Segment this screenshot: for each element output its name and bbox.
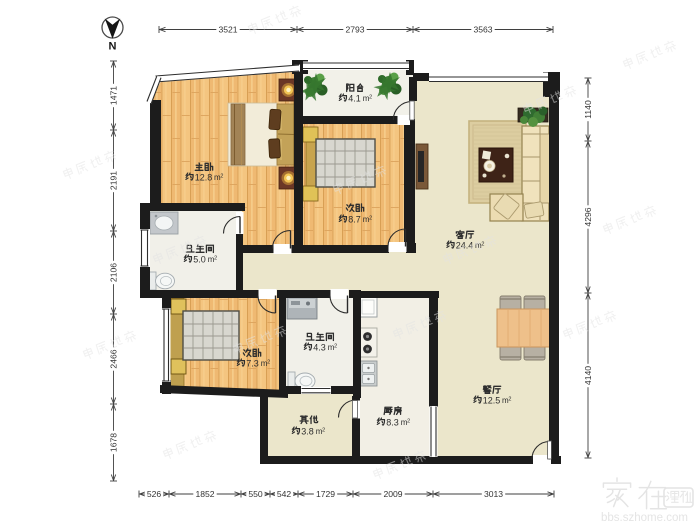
svg-text:2466: 2466 — [109, 349, 119, 368]
svg-text:2793: 2793 — [345, 25, 364, 35]
svg-text:2: 2 — [322, 428, 325, 434]
svg-text:4296: 4296 — [583, 207, 593, 226]
svg-text:3.8: 3.8 — [301, 426, 314, 436]
svg-text:2191: 2191 — [109, 171, 119, 190]
svg-text:4140: 4140 — [583, 366, 593, 385]
svg-text:8.3: 8.3 — [386, 417, 399, 427]
svg-text:2: 2 — [214, 256, 217, 262]
svg-text:2: 2 — [481, 242, 484, 248]
svg-text:12.5: 12.5 — [483, 395, 501, 405]
svg-text:1678: 1678 — [109, 433, 119, 452]
svg-text:1729: 1729 — [316, 489, 335, 499]
svg-text:7.3: 7.3 — [246, 358, 259, 368]
svg-text:2: 2 — [508, 397, 511, 403]
svg-text:1140: 1140 — [583, 100, 593, 119]
svg-text:3013: 3013 — [484, 489, 503, 499]
svg-text:N: N — [109, 41, 117, 53]
svg-text:2: 2 — [369, 95, 372, 101]
svg-text:8.7: 8.7 — [348, 214, 361, 224]
svg-text:2: 2 — [369, 216, 372, 222]
svg-text:3521: 3521 — [218, 25, 237, 35]
svg-text:2009: 2009 — [383, 489, 402, 499]
svg-text:550: 550 — [248, 489, 263, 499]
svg-text:12.8: 12.8 — [195, 172, 213, 182]
svg-text:2: 2 — [407, 419, 410, 425]
svg-text:526: 526 — [147, 489, 162, 499]
svg-text:bbs.szhome.com: bbs.szhome.com — [601, 512, 688, 524]
svg-text:5.0: 5.0 — [193, 254, 206, 264]
svg-text:2: 2 — [220, 174, 223, 180]
svg-text:3563: 3563 — [473, 25, 492, 35]
svg-text:2106: 2106 — [109, 263, 119, 282]
svg-text:2: 2 — [267, 360, 270, 366]
svg-text:1471: 1471 — [109, 86, 119, 105]
svg-text:4.1: 4.1 — [348, 93, 361, 103]
svg-text:4.3: 4.3 — [313, 342, 326, 352]
svg-text:2: 2 — [334, 344, 337, 350]
svg-text:542: 542 — [277, 489, 292, 499]
svg-text:1852: 1852 — [195, 489, 214, 499]
